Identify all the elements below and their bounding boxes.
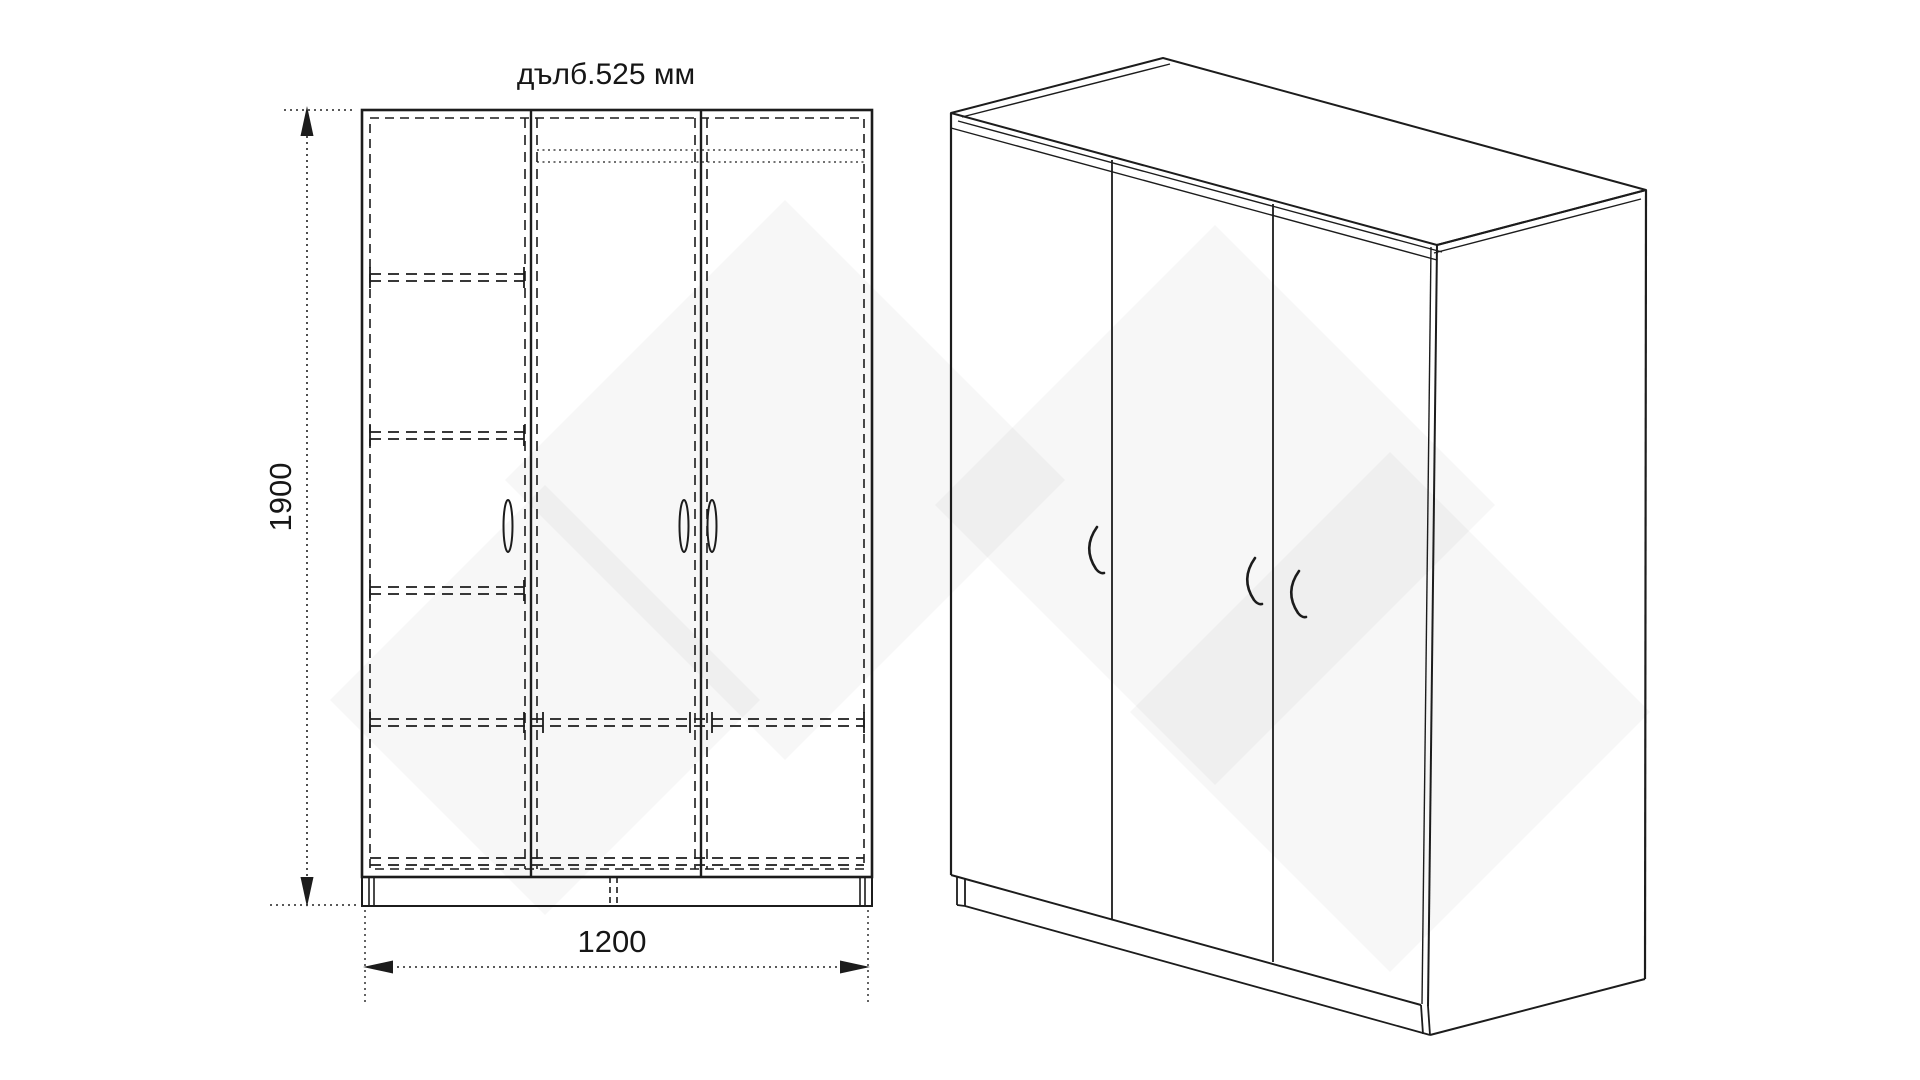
blueprint-svg: дълб.525 мм [0, 0, 1920, 1080]
wardrobe-blueprint: дълб.525 мм [0, 0, 1920, 1080]
width-dimension-value: 1200 [578, 924, 647, 959]
shelf-line [370, 267, 524, 288]
arrow-down-icon [301, 877, 314, 907]
arrow-right-icon [840, 961, 870, 974]
arrow-left-icon [363, 961, 393, 974]
iso-top-face [951, 58, 1646, 253]
shelf-line [370, 425, 524, 446]
height-dimension-value: 1900 [263, 463, 298, 532]
watermark-diamonds [330, 200, 1650, 972]
depth-dimension-label: дълб.525 мм [517, 58, 695, 91]
front-plinth [362, 877, 872, 906]
